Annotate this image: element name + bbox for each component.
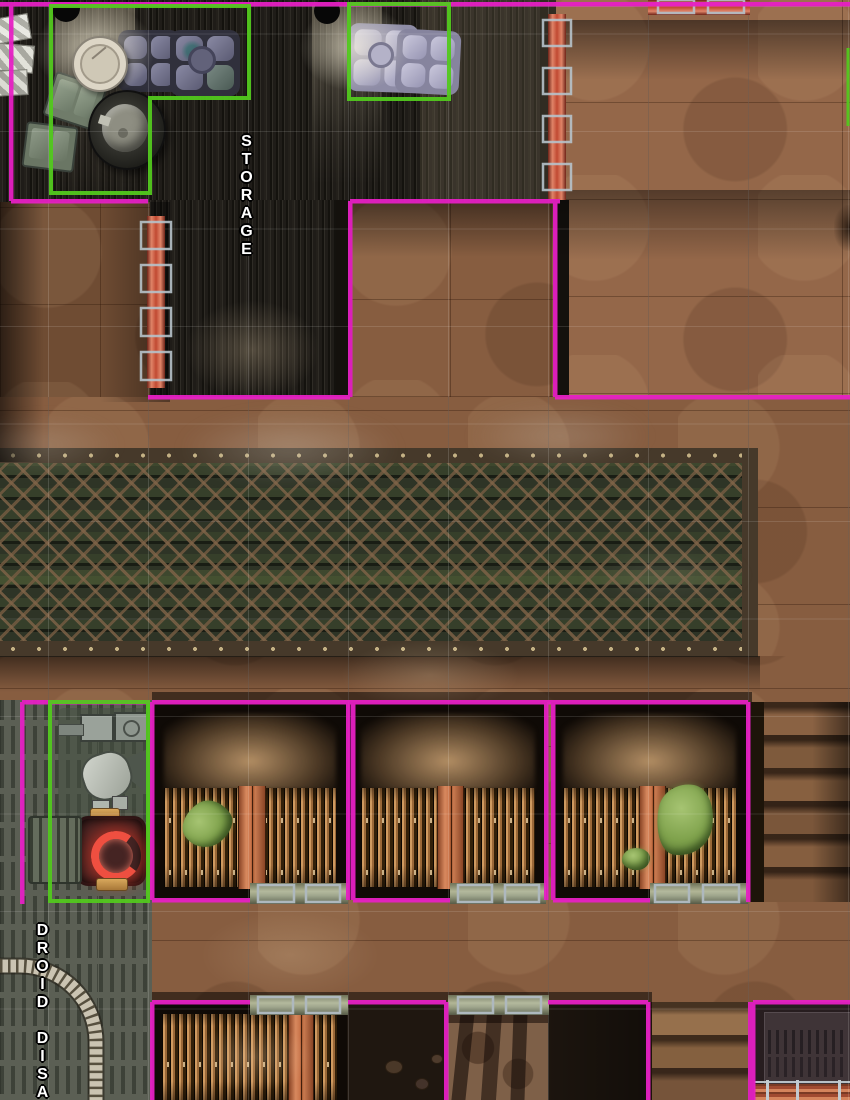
battle-map: STORAGE DROID DISASS [0,0,850,1100]
gate-bar [450,883,546,904]
gate-bar [448,995,549,1015]
gate-bar [650,883,748,904]
room-label-droid-disassembly: DROID DISASS [34,922,50,1100]
highlight-box-console [349,4,449,99]
gate-bar [250,995,348,1015]
smoke-plume [470,405,650,467]
smoke-plume [580,545,750,605]
segment-door-vertical-left [141,216,171,388]
segment-door-vertical-right [543,14,571,200]
gate-bar [250,883,348,904]
smoke-plume [0,415,120,475]
highlight-boxes-green [50,4,848,901]
smoke-plume [180,412,400,484]
highlight-box-storage-l [51,6,249,193]
highlight-box-droid [50,702,148,901]
room-label-storage: STORAGE [238,133,254,259]
